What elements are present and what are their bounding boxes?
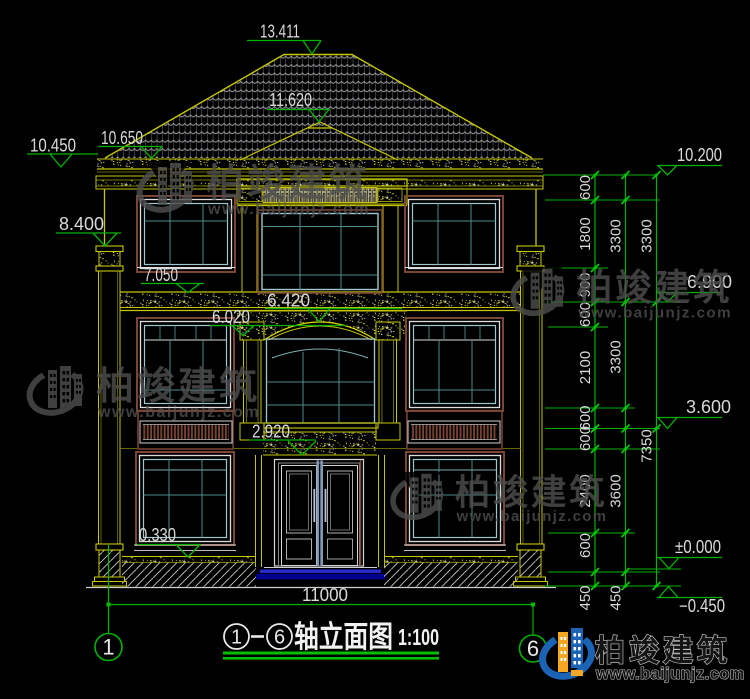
svg-text:3600: 3600 — [608, 474, 625, 507]
svg-text:6: 6 — [527, 636, 539, 661]
svg-text:2100: 2100 — [577, 351, 594, 384]
svg-text:3300: 3300 — [608, 340, 625, 373]
svg-text:7350: 7350 — [639, 429, 656, 462]
svg-text:1:100: 1:100 — [398, 624, 439, 650]
svg-text:3.600: 3.600 — [686, 397, 731, 417]
svg-text:600: 600 — [577, 533, 594, 558]
svg-text:11000: 11000 — [302, 585, 348, 605]
svg-text:450: 450 — [608, 585, 625, 610]
svg-text:2.920: 2.920 — [252, 422, 290, 442]
svg-text:6: 6 — [274, 627, 285, 649]
svg-text:13.411: 13.411 — [260, 22, 300, 42]
svg-text:10.200: 10.200 — [677, 145, 722, 165]
svg-text:450: 450 — [577, 585, 594, 610]
svg-text:0.330: 0.330 — [139, 525, 176, 545]
svg-text:8.400: 8.400 — [59, 214, 104, 234]
svg-text:1: 1 — [231, 627, 242, 649]
svg-text:3300: 3300 — [608, 219, 625, 252]
svg-text:7.050: 7.050 — [144, 265, 178, 285]
svg-text:−0.450: −0.450 — [679, 596, 725, 616]
svg-text:3300: 3300 — [639, 219, 656, 252]
svg-text:10.450: 10.450 — [30, 136, 76, 156]
svg-text:6.420: 6.420 — [267, 291, 310, 311]
svg-text:1800: 1800 — [577, 217, 594, 250]
svg-text:11.620: 11.620 — [269, 90, 312, 110]
svg-text:600: 600 — [577, 426, 594, 451]
svg-text:柏竣建筑: 柏竣建筑 — [595, 634, 731, 668]
svg-text:1: 1 — [102, 635, 114, 660]
svg-text:±0.000: ±0.000 — [675, 537, 721, 557]
svg-text:600: 600 — [577, 175, 594, 200]
svg-text:轴立面图: 轴立面图 — [294, 620, 393, 654]
svg-text:10.650: 10.650 — [101, 128, 143, 148]
svg-text:www.baijunjz.com: www.baijunjz.com — [595, 665, 745, 683]
svg-text:6.020: 6.020 — [212, 307, 250, 327]
